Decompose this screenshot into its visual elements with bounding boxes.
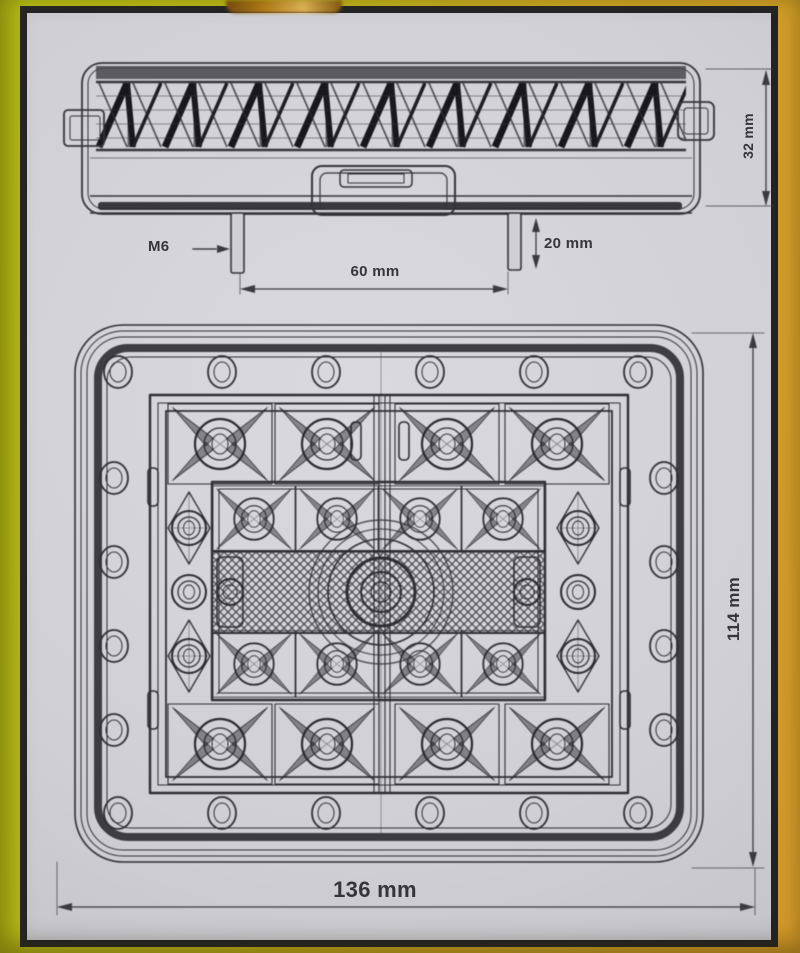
front-view-drawing — [75, 325, 703, 862]
dim-label-front-width: 136 mm — [290, 877, 460, 903]
dim-label-thread: M6 — [148, 238, 169, 255]
dim-label-stud-spacing: 60 mm — [330, 263, 420, 280]
dim-label-stud-length: 20 mm — [544, 235, 593, 252]
dim-label-front-height: 114 mm — [724, 563, 744, 655]
photo-background: 32 mm M6 20 mm 60 mm 136 mm 114 mm — [0, 0, 800, 953]
technical-drawing — [0, 0, 800, 953]
dim-label-side-height: 32 mm — [740, 100, 756, 172]
